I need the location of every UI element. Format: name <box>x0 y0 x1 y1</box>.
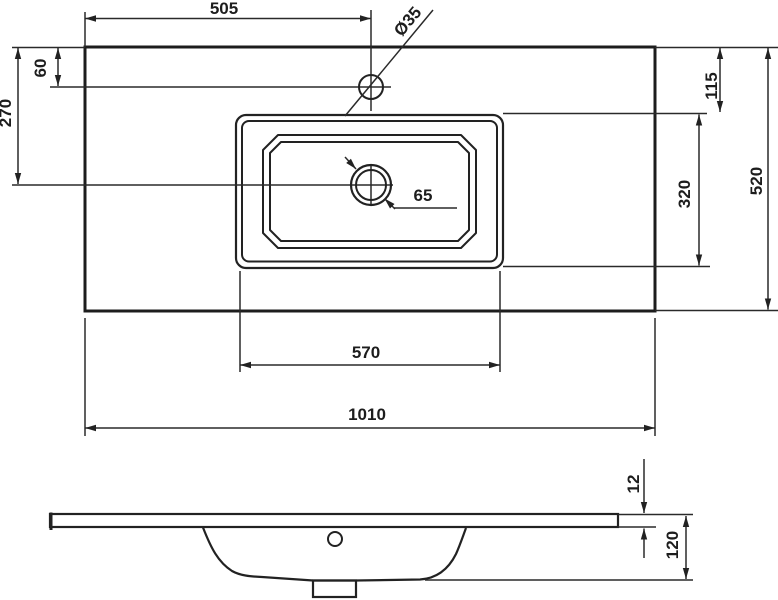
dim-basin-depth: 320 <box>503 115 710 267</box>
side-view: 12 120 <box>50 459 693 597</box>
top-view: Ø35 65 505 60 270 <box>0 0 778 436</box>
dim-drain-diameter: 65 <box>345 157 457 209</box>
dim-faucet-from-left: 505 <box>85 0 371 47</box>
dim-faucet-from-edge: 60 <box>12 48 85 87</box>
dim-faucet-from-left-label: 505 <box>210 0 238 18</box>
dim-counter-width-label: 1010 <box>348 405 386 424</box>
dim-drain-from-top-label: 270 <box>0 99 15 127</box>
dim-counter-width: 1010 <box>85 318 655 436</box>
slab-profile <box>50 514 618 527</box>
drain-diameter-arrow-lower <box>385 199 396 210</box>
overflow-hole <box>328 532 342 546</box>
dim-faucet-from-edge-label: 60 <box>31 59 50 78</box>
bowl-edge-inner <box>270 142 469 241</box>
technical-drawing-sheet: Ø35 65 505 60 270 <box>0 0 778 600</box>
dim-basin-width: 570 <box>240 271 500 372</box>
dim-drain-from-top: 270 <box>0 48 18 184</box>
drain-outlet <box>313 581 356 598</box>
washbasin-drawing: Ø35 65 505 60 270 <box>0 0 778 600</box>
drain-diameter-arrow-upper <box>345 157 356 169</box>
dim-slab-thickness-label: 12 <box>624 475 643 494</box>
hole-diameter-leader-line <box>345 10 433 116</box>
dim-basin-from-top: 115 <box>503 48 721 114</box>
dim-hole-diameter-label: Ø35 <box>390 3 425 40</box>
dim-counter-depth-label: 520 <box>747 167 766 195</box>
dim-total-height-label: 120 <box>663 531 682 559</box>
dim-basin-from-top-label: 115 <box>702 72 721 99</box>
dim-total-height: 120 <box>425 516 693 580</box>
bowl-edge-outer <box>263 135 476 248</box>
dim-drain-diameter-label: 65 <box>414 186 433 205</box>
bowl-profile <box>203 528 466 581</box>
dim-basin-width-label: 570 <box>352 343 380 362</box>
dim-basin-depth-label: 320 <box>675 180 694 208</box>
